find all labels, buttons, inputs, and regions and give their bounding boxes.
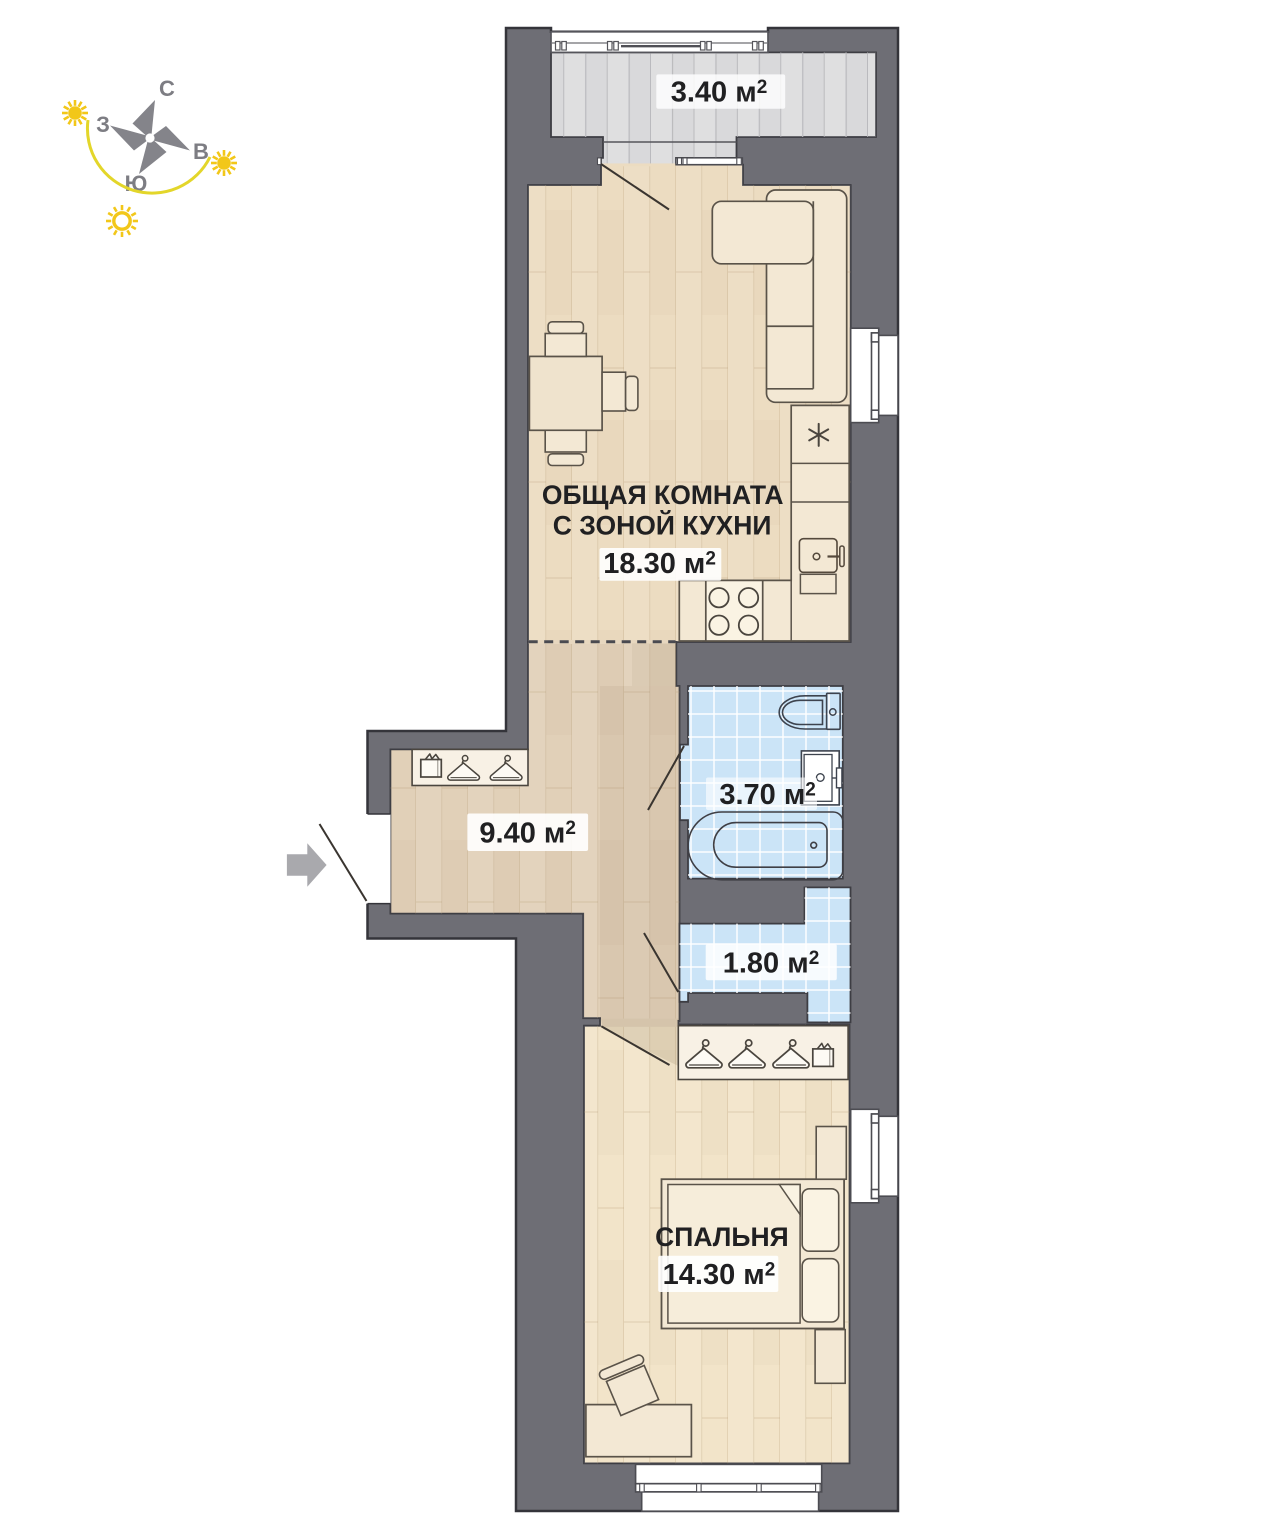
svg-text:С: С [159, 76, 175, 101]
svg-text:СПАЛЬНЯ: СПАЛЬНЯ [655, 1222, 788, 1252]
svg-text:ОБЩАЯ КОМНАТА: ОБЩАЯ КОМНАТА [542, 480, 784, 510]
svg-text:В: В [193, 139, 209, 164]
svg-text:14.30 м2: 14.30 м2 [663, 1259, 776, 1291]
svg-text:З: З [96, 112, 110, 137]
svg-text:9.40 м2: 9.40 м2 [479, 818, 576, 850]
svg-text:1.80 м2: 1.80 м2 [723, 948, 820, 980]
svg-text:3.40 м2: 3.40 м2 [671, 76, 768, 108]
svg-text:3.70 м2: 3.70 м2 [719, 779, 816, 811]
svg-text:С ЗОНОЙ КУХНИ: С ЗОНОЙ КУХНИ [553, 511, 772, 541]
svg-text:18.30 м2: 18.30 м2 [603, 548, 716, 580]
